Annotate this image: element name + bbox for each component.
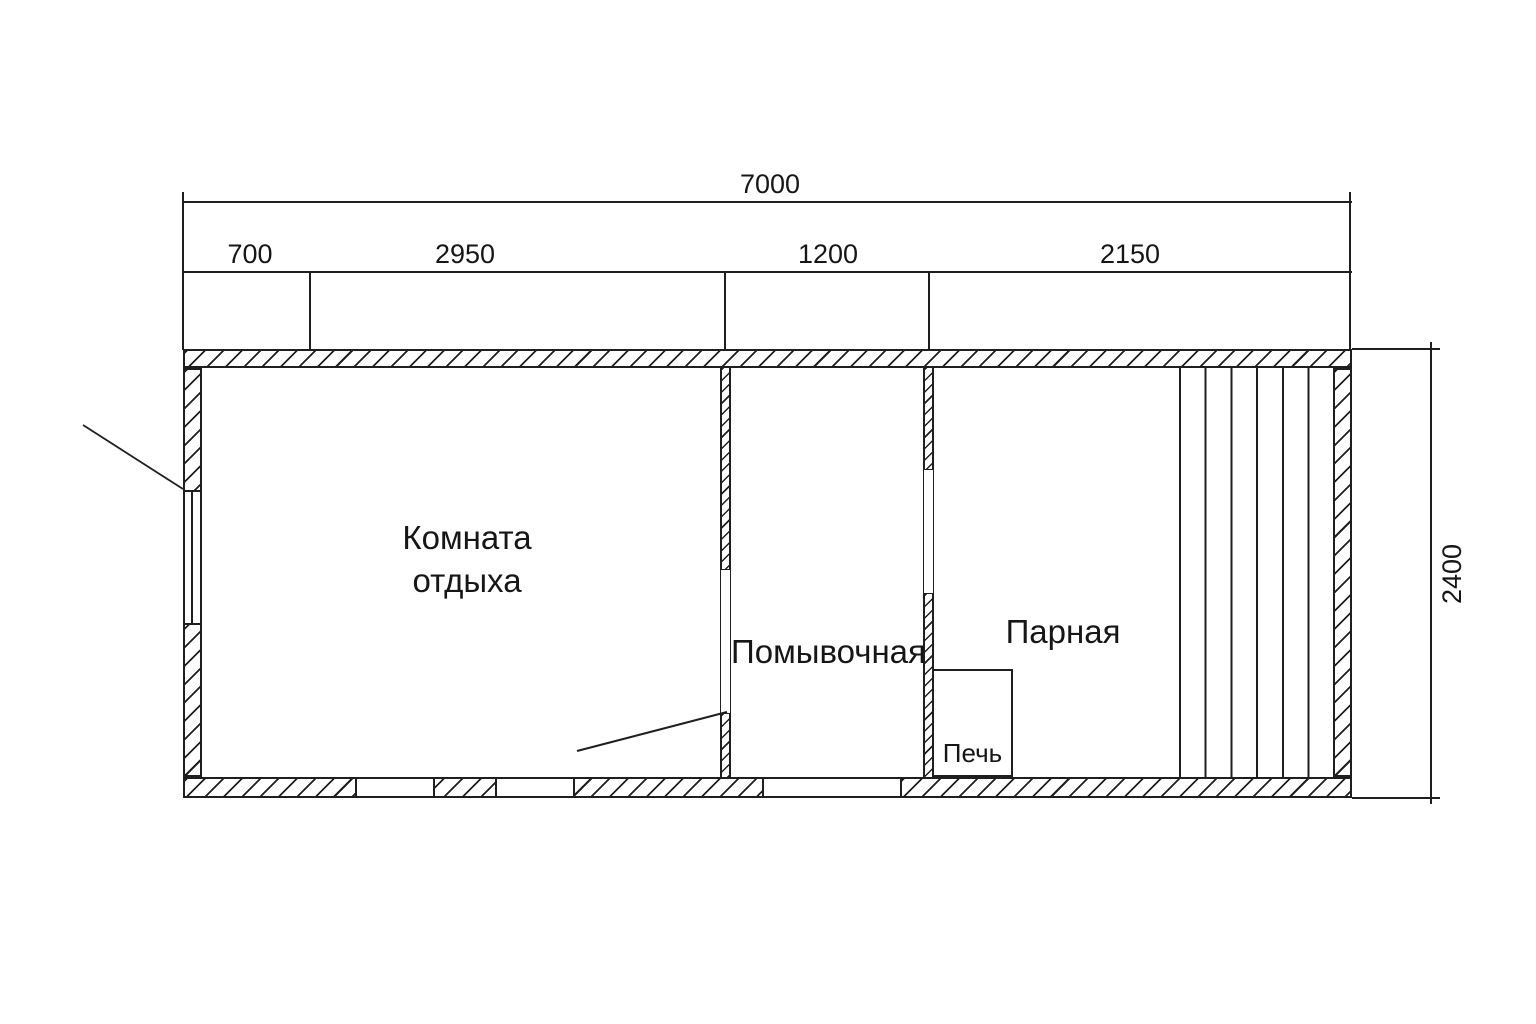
steam-room-label: Парная xyxy=(963,614,1163,650)
rest-room-label-line1: Комната xyxy=(302,520,632,556)
rest-room-label-line2: отдыха xyxy=(302,563,632,599)
washing-room-label: Помывочная xyxy=(731,634,923,670)
door-swing-line xyxy=(577,712,727,751)
window-leader-line xyxy=(83,425,183,489)
floor-plan-canvas: 7000 700 2950 1200 2150 2400 Печь xyxy=(0,0,1536,1024)
annotation-lines xyxy=(0,0,1536,1024)
